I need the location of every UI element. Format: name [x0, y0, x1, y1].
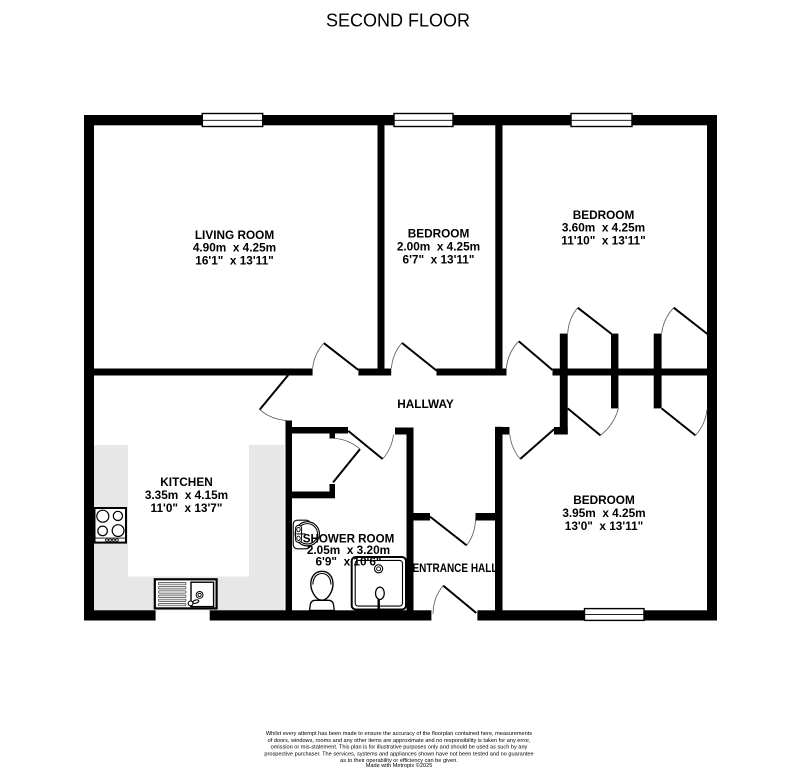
svg-text:6'9" x 10'6": 6'9" x 10'6"	[316, 554, 382, 568]
svg-text:prospective purchaser. The ser: prospective purchaser. The services, sys…	[264, 751, 533, 757]
svg-text:HALLWAY: HALLWAY	[397, 397, 454, 411]
svg-text:13'0" x 13'11": 13'0" x 13'11"	[565, 519, 643, 533]
svg-text:Whilst every attempt has been: Whilst every attempt has been made to en…	[266, 731, 532, 737]
svg-text:11'0" x 13'7": 11'0" x 13'7"	[151, 501, 223, 515]
svg-text:ENTRANCE HALL: ENTRANCE HALL	[413, 561, 498, 575]
svg-text:SECOND FLOOR: SECOND FLOOR	[326, 11, 470, 31]
svg-text:of doors, windows, rooms and a: of doors, windows, rooms and any other i…	[268, 738, 531, 744]
svg-text:omission or mis-statement. Thi: omission or mis-statement. This plan is …	[271, 745, 528, 751]
svg-text:16'1" x 13'11": 16'1" x 13'11"	[195, 254, 273, 268]
svg-text:6'7" x 13'11": 6'7" x 13'11"	[403, 252, 475, 266]
svg-text:11'10" x 13'11": 11'10" x 13'11"	[561, 233, 645, 247]
svg-text:Made with Metropix ©2025: Made with Metropix ©2025	[366, 762, 433, 768]
